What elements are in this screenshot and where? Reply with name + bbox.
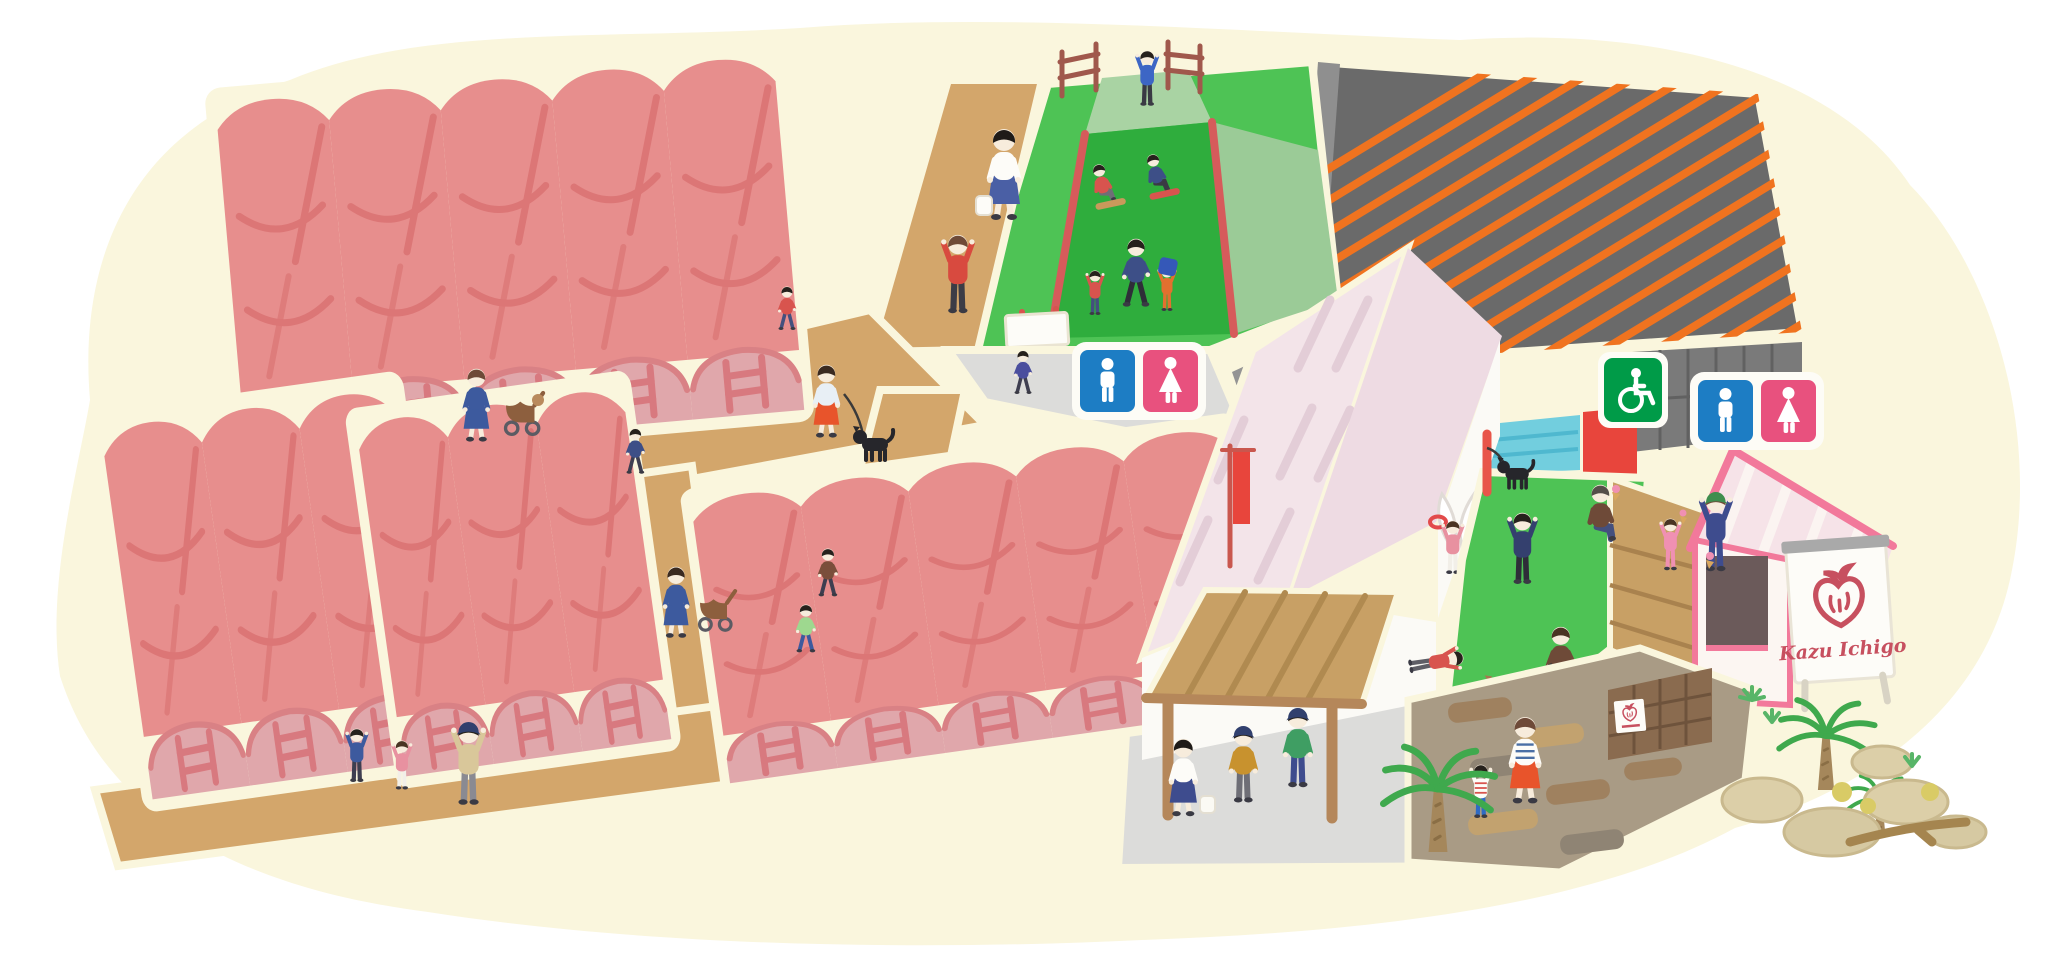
restroom-sign-playground (1072, 342, 1206, 420)
restroom-sign-shop (1690, 372, 1824, 450)
mini-farm-sign (1614, 699, 1647, 733)
kiosk-service-window[interactable] (1706, 556, 1768, 648)
farm-map-canvas: Kazu Ichigo (0, 0, 2048, 960)
strawberry-farm-illustrated-map: Kazu Ichigo (0, 0, 2048, 960)
accessible-parking-sign (1598, 352, 1668, 428)
shopping-bag-icon (976, 196, 992, 215)
shopping-bag-icon (1200, 796, 1215, 813)
pet-in-stroller (532, 394, 544, 406)
